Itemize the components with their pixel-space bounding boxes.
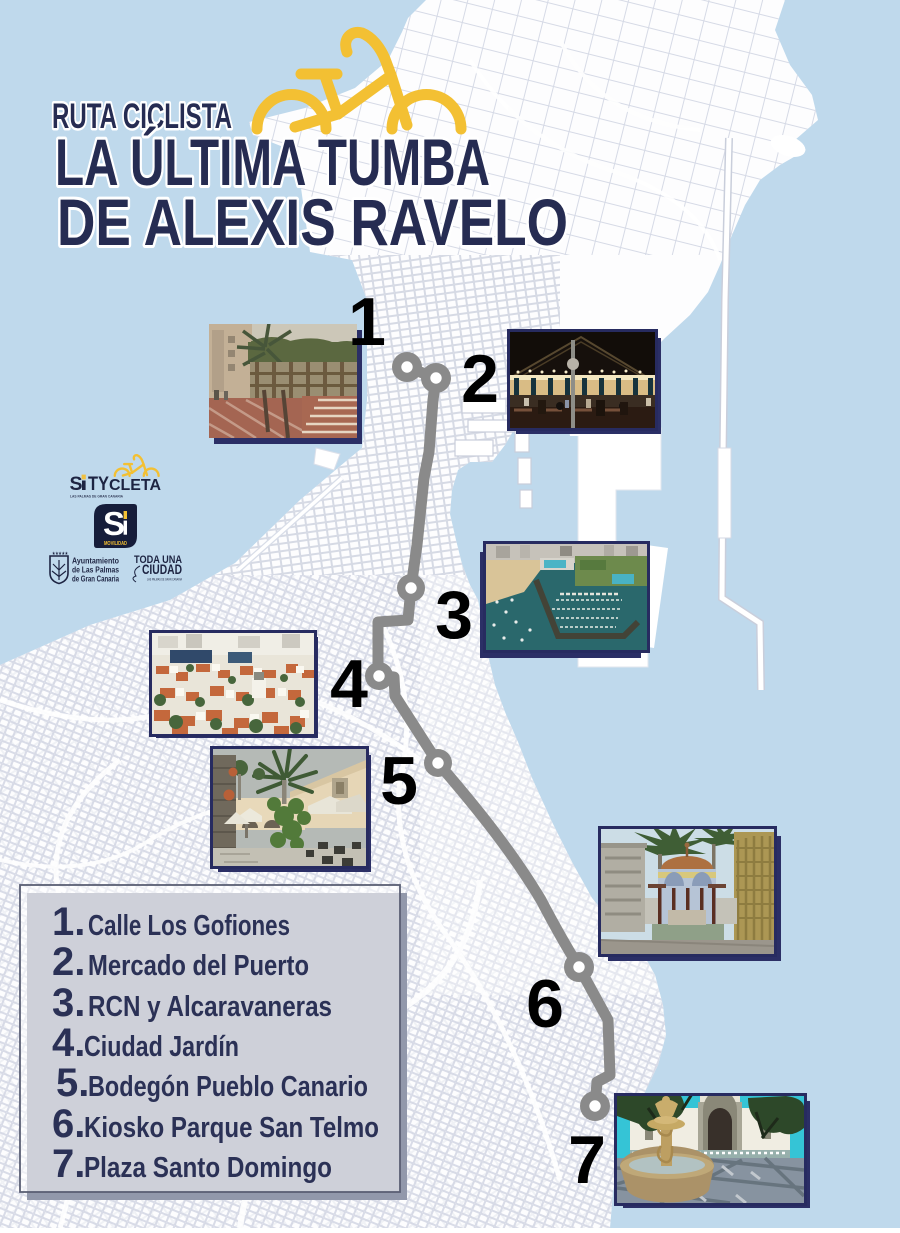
svg-text:6.: 6. xyxy=(52,1102,85,1146)
svg-text:Ciudad Jardín: Ciudad Jardín xyxy=(84,1031,239,1063)
svg-text:Plaza Santo Domingo: Plaza Santo Domingo xyxy=(84,1152,332,1184)
svg-text:6: 6 xyxy=(526,966,564,1042)
svg-text:DE ALEXIS RAVELO: DE ALEXIS RAVELO xyxy=(57,185,568,259)
svg-text:4: 4 xyxy=(330,646,368,722)
svg-text:1.: 1. xyxy=(52,900,85,944)
svg-text:2.: 2. xyxy=(52,940,85,984)
svg-text:3.: 3. xyxy=(52,981,85,1025)
svg-text:LAS PALMAS DE GRAN CANARIA: LAS PALMAS DE GRAN CANARIA xyxy=(147,578,182,582)
svg-text:5: 5 xyxy=(380,743,418,819)
svg-text:CIUDAD: CIUDAD xyxy=(142,561,182,577)
svg-text:1: 1 xyxy=(348,284,386,360)
svg-text:TY: TY xyxy=(88,473,109,495)
svg-text:de Las Palmas: de Las Palmas xyxy=(72,566,119,575)
svg-text:Mercado del Puerto: Mercado del Puerto xyxy=(88,950,309,982)
svg-text:S: S xyxy=(103,505,125,542)
svg-text:RCN y Alcaravaneras: RCN y Alcaravaneras xyxy=(88,991,332,1023)
svg-text:Bodegón Pueblo Canario: Bodegón Pueblo Canario xyxy=(88,1071,368,1103)
svg-text:LAS PALMAS DE GRAN CANARIA: LAS PALMAS DE GRAN CANARIA xyxy=(70,495,124,499)
svg-text:S: S xyxy=(70,473,83,495)
svg-text:2: 2 xyxy=(461,341,499,417)
svg-text:3: 3 xyxy=(435,577,473,653)
svg-text:Calle Los Gofiones: Calle Los Gofiones xyxy=(88,910,290,942)
svg-text:Ayuntamiento: Ayuntamiento xyxy=(72,557,119,566)
svg-text:7.: 7. xyxy=(52,1142,85,1186)
svg-text:Kiosko Parque San Telmo: Kiosko Parque San Telmo xyxy=(84,1112,379,1144)
svg-text:CLETA: CLETA xyxy=(109,477,161,494)
svg-text:MOVILIDAD: MOVILIDAD xyxy=(104,541,127,547)
svg-text:5.: 5. xyxy=(56,1061,89,1105)
svg-text:★★★★★: ★★★★★ xyxy=(52,551,69,557)
svg-text:4.: 4. xyxy=(52,1021,85,1065)
svg-text:7: 7 xyxy=(568,1122,606,1198)
svg-text:de Gran Canaria: de Gran Canaria xyxy=(72,575,119,584)
